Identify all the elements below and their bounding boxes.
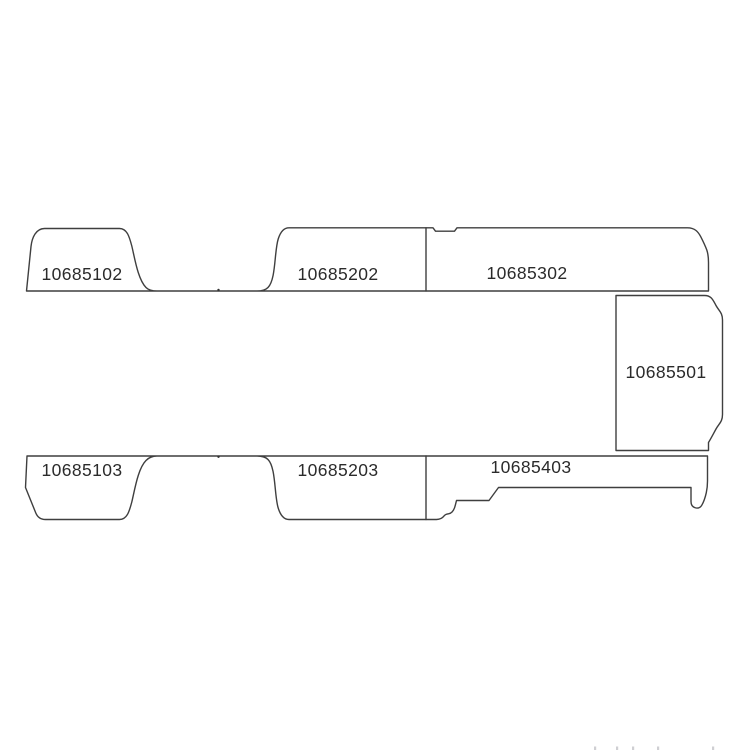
bottom-strip-joint-dot [217, 456, 219, 458]
part-label-10685203: 10685203 [297, 460, 378, 480]
part-label-10685202: 10685202 [297, 264, 378, 284]
part-label-10685302: 10685302 [486, 263, 567, 283]
parts-diagram-page: 10685102 10685202 10685302 10685501 1068… [0, 0, 750, 750]
part-label-10685501: 10685501 [625, 362, 706, 382]
part-label-10685103: 10685103 [41, 460, 122, 480]
parts-diagram-canvas: 10685102 10685202 10685302 10685501 1068… [0, 0, 750, 750]
top-strip-joint-dot [217, 289, 219, 291]
cropped-text-marks [594, 747, 714, 750]
part-label-10685102: 10685102 [41, 264, 122, 284]
part-label-10685403: 10685403 [490, 457, 571, 477]
